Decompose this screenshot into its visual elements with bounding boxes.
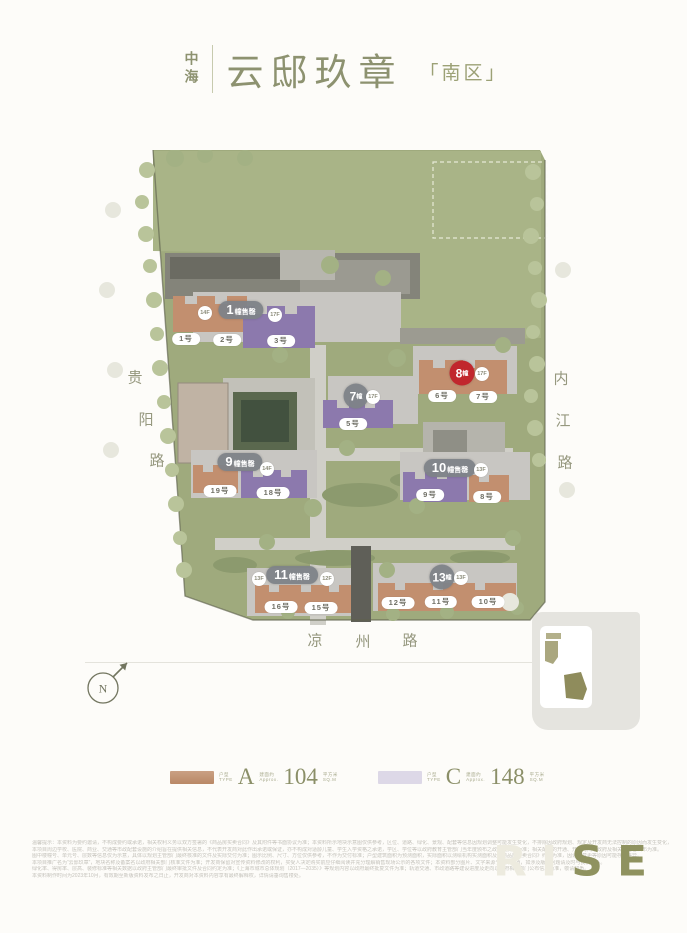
brand-logo: 中海 [179, 51, 199, 87]
road-label-neijiang: 内 [553, 368, 568, 389]
legend-item-a: 户型TYPE A 建面约Approx. 104 平方米SQ.M [170, 763, 338, 791]
legend-unit-label-en: SQ.M [323, 777, 338, 783]
unit-label: 3号 [267, 335, 295, 347]
road-label-guiyang: 贵 [127, 367, 142, 388]
unit-label: 2号 [213, 334, 241, 346]
unit-label: 18号 [257, 487, 290, 499]
road-label-neijiang: 江 [555, 410, 570, 431]
building-7-badge: 7幢 [344, 384, 369, 409]
compass-north-label: N [99, 682, 108, 696]
unit-label: 11号 [425, 596, 457, 608]
building-10-badge: 10幢售罄 [424, 459, 476, 477]
unit-label: 1号 [172, 333, 200, 345]
legend-letter: A [238, 765, 255, 789]
road-label-neijiang: 路 [557, 452, 572, 473]
zone-label: 「南区」 [419, 53, 507, 85]
legend-type-label-en: TYPE [219, 777, 233, 783]
road-label-liangzhou: 路 [402, 630, 417, 651]
building-13-badge: 13幢 [430, 565, 455, 590]
floor-badge: 13F [252, 572, 266, 586]
road-label-guiyang: 阳 [138, 409, 153, 430]
site-plan-base [85, 150, 600, 730]
unit-label: 16号 [265, 601, 298, 613]
inset-north-parcel [546, 633, 561, 639]
legend-approx-label-en: Approx. [259, 777, 278, 783]
legend-area-value: 104 [283, 765, 318, 789]
header-divider [212, 45, 213, 93]
legend-item-c: 户型TYPE C 建面约Approx. 148 平方米SQ.M [378, 763, 545, 791]
floor-badge: 17F [475, 367, 489, 381]
floor-badge: 17F [366, 390, 380, 404]
unit-label: 5号 [339, 418, 367, 430]
floor-badge: 14F [260, 462, 274, 476]
location-inset [532, 608, 640, 730]
road-label-liangzhou: 凉 [307, 630, 322, 651]
unit-label: 19号 [204, 485, 237, 497]
inset-card [540, 626, 592, 708]
unit-label: 7号 [469, 391, 497, 403]
legend-swatch-c [378, 771, 422, 784]
legend-unit-label-en: SQ.M [530, 777, 545, 783]
compass-icon: N [74, 654, 134, 714]
building-1-badge: 1幢售罄 [218, 301, 263, 319]
legend-letter: C [446, 765, 461, 789]
unit-label: 9号 [416, 489, 444, 501]
legend-approx-label-en: Approx. [466, 777, 485, 783]
floor-badge: 17F [268, 308, 282, 322]
watermark-solid-letters: SE [571, 837, 661, 885]
building-9-badge: 9幢售罄 [217, 453, 262, 471]
building-11-badge: 11幢售罄 [266, 566, 318, 584]
road-label-liangzhou: 州 [355, 631, 370, 652]
unit-label: 12号 [382, 597, 415, 609]
brand-watermark: RISE [493, 837, 661, 885]
inset-north-parcel [545, 641, 558, 664]
page-title: 云邸玖章 [226, 42, 402, 96]
floor-badge: 13F [454, 571, 468, 585]
watermark-faint-letters: RI [493, 837, 571, 885]
floor-badge: 12F [320, 572, 334, 586]
legend-area-value: 148 [490, 765, 525, 789]
site-plan-map: 贵 阳 路 内 江 路 凉 州 路 1幢售罄 14F 17F 1号 2号 3号 … [85, 150, 600, 730]
legend-swatch-a [170, 771, 214, 784]
unit-label: 15号 [305, 602, 338, 614]
site-plan-page: 中海 云邸玖章 「南区」 [0, 0, 687, 933]
header: 中海 云邸玖章 「南区」 [0, 42, 687, 96]
legend-type-label-en: TYPE [427, 777, 441, 783]
building-8-badge: 8幢 [450, 361, 475, 386]
floor-badge: 14F [198, 306, 212, 320]
unit-label: 8号 [473, 491, 501, 503]
unit-label: 10号 [472, 596, 505, 608]
inset-south-parcel [564, 672, 587, 700]
road-label-guiyang: 路 [149, 450, 164, 471]
unit-label: 6号 [428, 390, 456, 402]
floor-badge: 13F [474, 463, 488, 477]
